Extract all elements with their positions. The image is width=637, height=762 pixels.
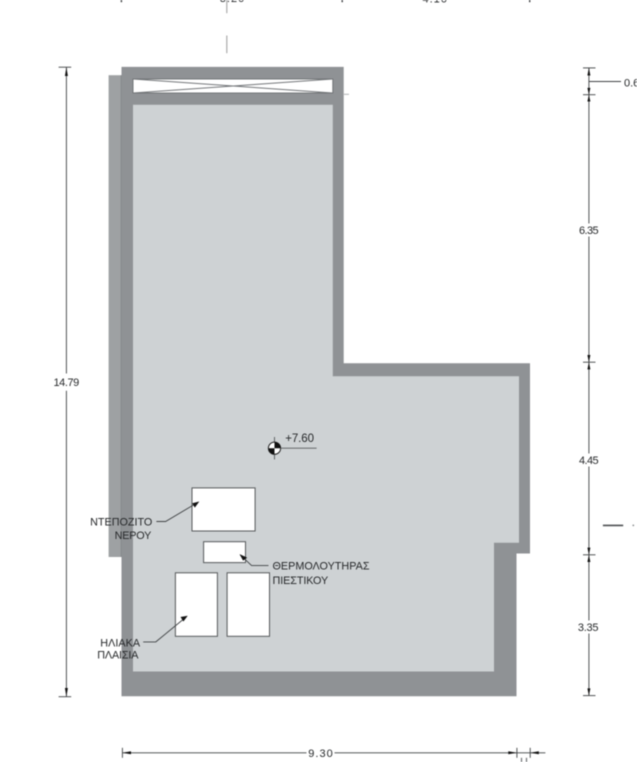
svg-text:ΗΛΙΑΚΑ: ΗΛΙΑΚΑ xyxy=(100,638,141,650)
svg-text:3.35: 3.35 xyxy=(578,622,599,634)
svg-text:ΠΛΑΙΣΙΑ: ΠΛΑΙΣΙΑ xyxy=(97,649,139,661)
svg-text:4.10: 4.10 xyxy=(422,0,447,6)
svg-text:+7.60: +7.60 xyxy=(285,433,314,445)
svg-text:14.79: 14.79 xyxy=(54,377,80,389)
svg-text:0.6: 0.6 xyxy=(624,77,637,89)
svg-text:6.35: 6.35 xyxy=(579,225,599,237)
svg-text:3.20: 3.20 xyxy=(220,0,245,5)
svg-text:9.30: 9.30 xyxy=(308,748,333,760)
svg-text:ΘΕΡΜΟΛΟΥΤΗΡΑΣ: ΘΕΡΜΟΛΟΥΤΗΡΑΣ xyxy=(273,561,370,573)
svg-text:ΝΤΕΠΟΖΙΤΟ: ΝΤΕΠΟΖΙΤΟ xyxy=(90,516,152,528)
svg-text:ΝΕΡΟΥ: ΝΕΡΟΥ xyxy=(115,530,152,542)
svg-text:4.45: 4.45 xyxy=(579,455,599,467)
svg-text:ΠΙΕΣΤΙΚΟΥ: ΠΙΕΣΤΙΚΟΥ xyxy=(273,575,329,587)
